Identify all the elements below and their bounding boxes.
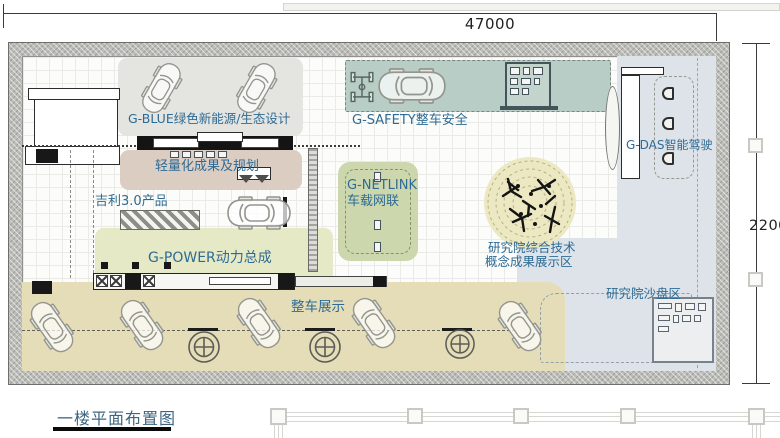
column-dot	[101, 262, 108, 269]
dashed-line	[70, 150, 71, 278]
dashed-line	[93, 150, 94, 278]
chassis-icon	[350, 69, 374, 105]
pillar-screen	[605, 86, 620, 170]
das-console-top	[621, 67, 664, 75]
counter-notch	[197, 132, 243, 142]
column-symbol	[309, 331, 341, 363]
das-demo-area	[654, 76, 694, 179]
label-g-blue: G-BLUE绿色新能源/生态设计	[128, 112, 290, 126]
adjacent-column-marker	[748, 272, 763, 287]
netlink-exhibit	[374, 242, 381, 252]
column-symbol	[188, 331, 220, 363]
label-g-netlink-cn: 车载网联	[347, 195, 399, 210]
column-block	[36, 149, 58, 163]
board-base	[500, 106, 558, 110]
counter-stools	[170, 151, 227, 158]
counter-segment	[153, 138, 199, 148]
adjacent-plan-top	[283, 3, 780, 11]
das-seat	[662, 87, 674, 100]
car-icon	[377, 69, 447, 103]
drawing-title: 一楼平面布置图	[57, 405, 176, 429]
label-g-safety: G-SAFETY整车安全	[352, 114, 468, 129]
dimension-tick-left	[3, 4, 4, 28]
das-seat	[662, 117, 674, 130]
netlink-exhibit	[374, 220, 381, 230]
label-sandbox: 研究院沙盘区	[606, 287, 681, 301]
stage-body	[34, 99, 118, 147]
dimension-tick-top	[742, 43, 770, 44]
sand-table	[652, 297, 714, 363]
floor-plan: 47000 22000	[0, 0, 780, 438]
dimension-width-label: 47000	[440, 15, 540, 33]
dimension-line-top	[3, 13, 717, 14]
label-research-line2: 概念成果展示区	[485, 255, 573, 269]
dimension-tick-bottom	[742, 383, 770, 384]
zone-vehicle-display	[22, 282, 565, 371]
dimension-tick-right	[716, 13, 717, 41]
dimension-height-label: 22000	[749, 218, 780, 234]
geely-plinth	[120, 210, 200, 230]
zone-g-netlink	[338, 162, 418, 261]
adjacent-column-marker	[748, 138, 763, 153]
label-g-netlink-en: G-NETLINK	[347, 179, 417, 194]
das-seat	[662, 152, 674, 165]
label-lightweight: 轻量化成果及规划	[155, 160, 259, 175]
partition-wall	[308, 148, 318, 272]
research-tree-display	[483, 156, 577, 250]
column-block	[32, 281, 52, 294]
column-symbol	[445, 329, 475, 359]
adjacent-plan-bottom	[270, 403, 780, 438]
title-underline	[53, 427, 171, 431]
das-console	[621, 75, 640, 179]
counter-segment	[241, 138, 279, 148]
counter-gpower	[93, 273, 295, 290]
safety-exhibit-board	[505, 62, 551, 108]
counter-extension	[295, 276, 387, 287]
label-g-power: G-POWER动力总成	[148, 250, 272, 266]
label-geely-3-0: 吉利3.0产品	[95, 195, 168, 210]
counter-inset	[209, 277, 271, 285]
column-dot	[132, 262, 139, 269]
label-g-das: G-DAS智能驾驶	[626, 139, 713, 153]
dimension-line-right	[756, 43, 757, 383]
counter-gblue	[137, 136, 293, 150]
label-vehicle-display: 整车展示	[291, 300, 345, 316]
car-icon	[226, 197, 292, 229]
